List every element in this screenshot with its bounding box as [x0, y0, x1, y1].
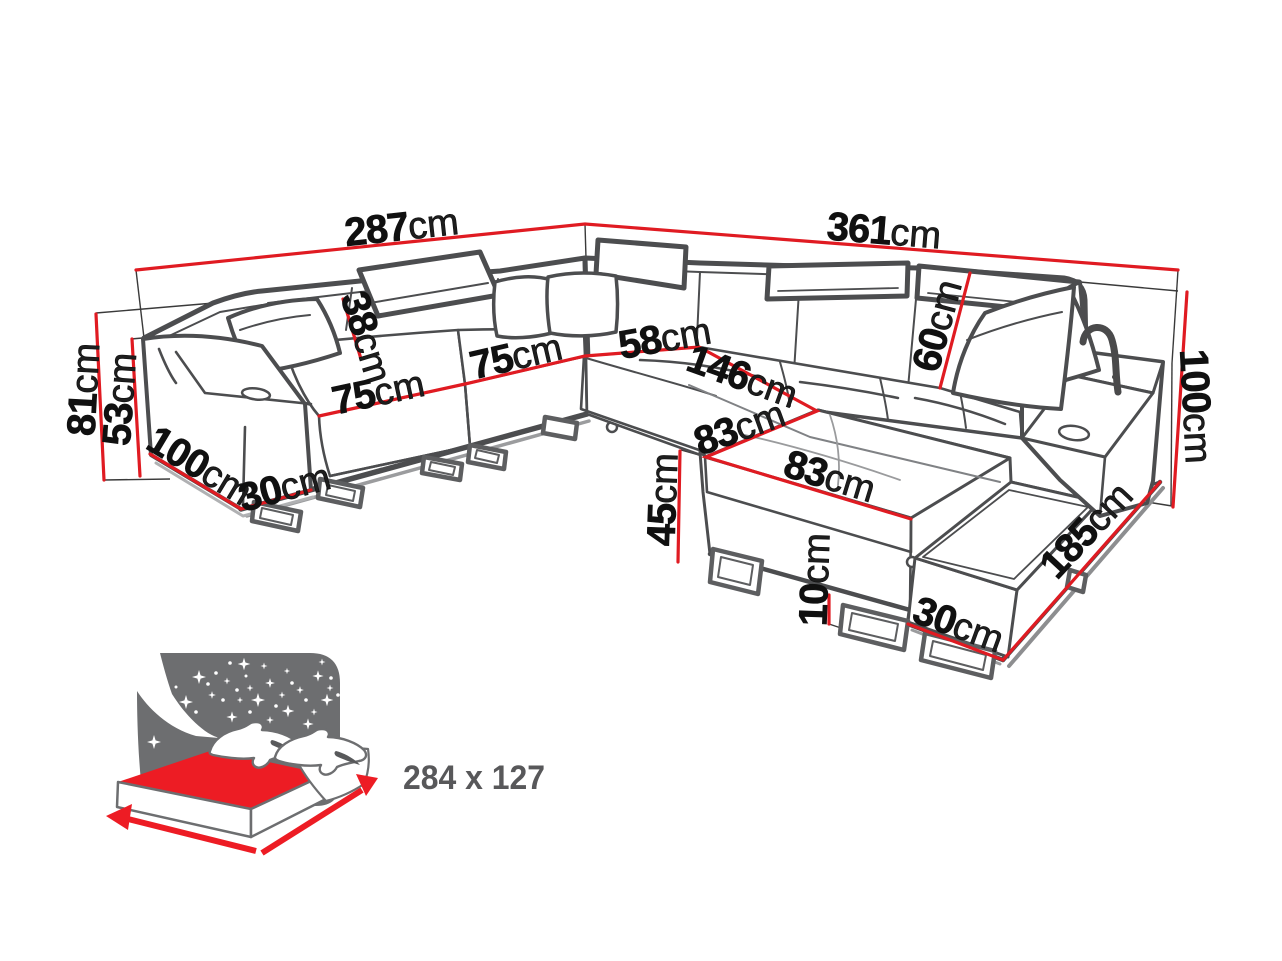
svg-text:45cm: 45cm	[639, 452, 686, 547]
svg-text:53cm: 53cm	[95, 351, 145, 447]
svg-text:100cm: 100cm	[1171, 348, 1221, 465]
svg-text:10cm: 10cm	[791, 532, 838, 627]
svg-text:284 x 127: 284 x 127	[403, 759, 545, 797]
